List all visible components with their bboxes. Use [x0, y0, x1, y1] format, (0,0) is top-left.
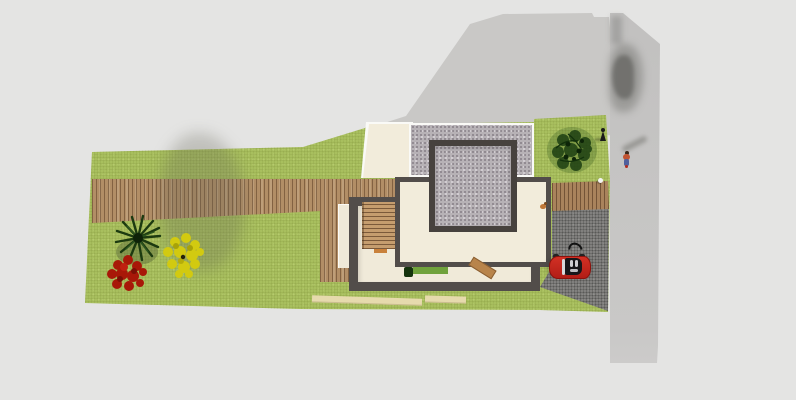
car-seat-right [575, 260, 578, 267]
staircase [362, 202, 397, 249]
car-cabin [565, 258, 582, 275]
ball [598, 178, 603, 183]
palm-crown [133, 233, 143, 243]
yellow-bush-trunk [181, 255, 185, 259]
road-tree-shadow-core [612, 55, 634, 99]
road-shadow-small [611, 16, 622, 44]
terrace-rug [413, 267, 448, 274]
staircase-landing [374, 249, 387, 253]
person-feet [625, 165, 628, 168]
site-plan-scene [0, 0, 796, 400]
roof-lantern-gravel [435, 146, 511, 226]
planter-box [404, 267, 413, 277]
roof-lantern [429, 140, 517, 232]
car-seat-left [570, 260, 573, 267]
garden-trees [95, 205, 215, 300]
right-bush [545, 123, 603, 179]
bird-head [544, 202, 547, 205]
car-seat-back [570, 269, 578, 272]
plank-short [425, 295, 466, 303]
statue-head [601, 128, 605, 132]
